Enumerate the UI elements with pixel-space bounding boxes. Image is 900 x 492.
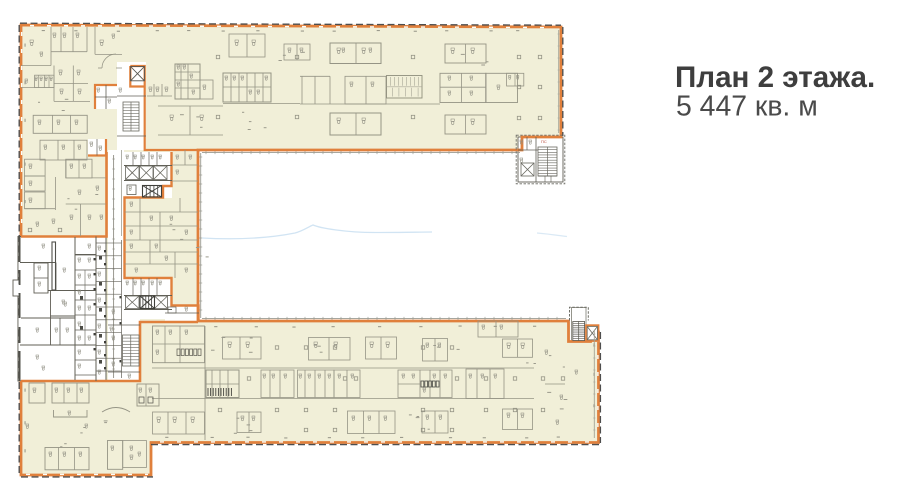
svg-text:5 447 кв. м: 5 447 кв. м — [676, 91, 818, 123]
svg-text:План 2 этажа.: План 2 этажа. — [675, 61, 875, 94]
svg-text:ПС: ПС — [541, 139, 547, 144]
